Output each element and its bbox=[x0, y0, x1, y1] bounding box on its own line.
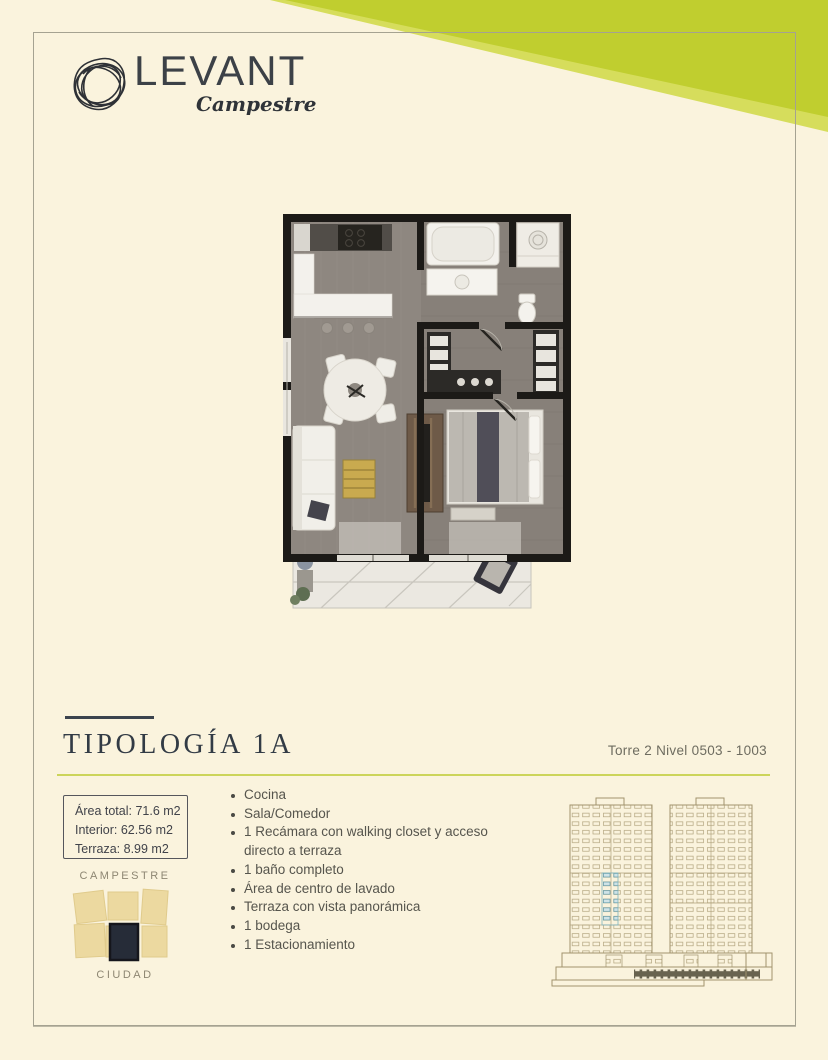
dining-set bbox=[323, 354, 396, 425]
area-terraza: Terraza: 8.99 m2 bbox=[75, 840, 187, 859]
bullet-icon bbox=[231, 794, 235, 798]
area-total: Área total: 71.6 m2 bbox=[75, 802, 187, 821]
list-item: 1 bodega bbox=[230, 917, 492, 936]
bullet-icon bbox=[231, 813, 235, 817]
bullet-icon bbox=[231, 888, 235, 892]
floor-plan-image bbox=[281, 210, 573, 612]
bed bbox=[447, 410, 543, 520]
bullet-icon bbox=[231, 906, 235, 910]
area-interior: Interior: 62.56 m2 bbox=[75, 821, 187, 840]
list-item: Área de centro de lavado bbox=[230, 880, 492, 899]
green-divider-line bbox=[57, 774, 770, 776]
features-list: Cocina Sala/Comedor 1 Recámara con walki… bbox=[230, 786, 492, 954]
location-diagram: CAMPESTRE CIUDAD bbox=[58, 870, 192, 981]
tv-console bbox=[407, 414, 443, 512]
title-rule bbox=[65, 716, 154, 719]
list-item: 1 baño completo bbox=[230, 861, 492, 880]
list-item: Terraza con vista panorámica bbox=[230, 898, 492, 917]
page-title: TIPOLOGÍA 1A bbox=[63, 729, 423, 761]
list-item: Sala/Comedor bbox=[230, 805, 492, 824]
laundry-area bbox=[517, 223, 559, 267]
location-label-ciudad: CIUDAD bbox=[58, 969, 192, 981]
location-blocks-diagram bbox=[58, 886, 192, 962]
brand-name: LEVANT bbox=[134, 50, 314, 92]
list-item: 1 Estacionamiento bbox=[230, 936, 492, 955]
bullet-icon bbox=[231, 869, 235, 873]
bullet-icon bbox=[231, 944, 235, 948]
bullet-icon bbox=[231, 831, 235, 835]
location-label-campestre: CAMPESTRE bbox=[58, 870, 192, 882]
sofa bbox=[293, 426, 335, 530]
coffee-table bbox=[343, 460, 375, 498]
building-elevation-drawing bbox=[550, 785, 778, 990]
bullet-icon bbox=[231, 925, 235, 929]
list-item: 1 Recámara con walking closet y acceso d… bbox=[230, 823, 492, 860]
tower-level-info: Torre 2 Nivel 0503 - 1003 bbox=[470, 743, 767, 758]
levant-logo-icon bbox=[69, 54, 131, 118]
brand-subtitle: Campestre bbox=[196, 92, 306, 116]
area-info-box: Área total: 71.6 m2 Interior: 62.56 m2 T… bbox=[63, 795, 188, 859]
list-item: Cocina bbox=[230, 786, 492, 805]
